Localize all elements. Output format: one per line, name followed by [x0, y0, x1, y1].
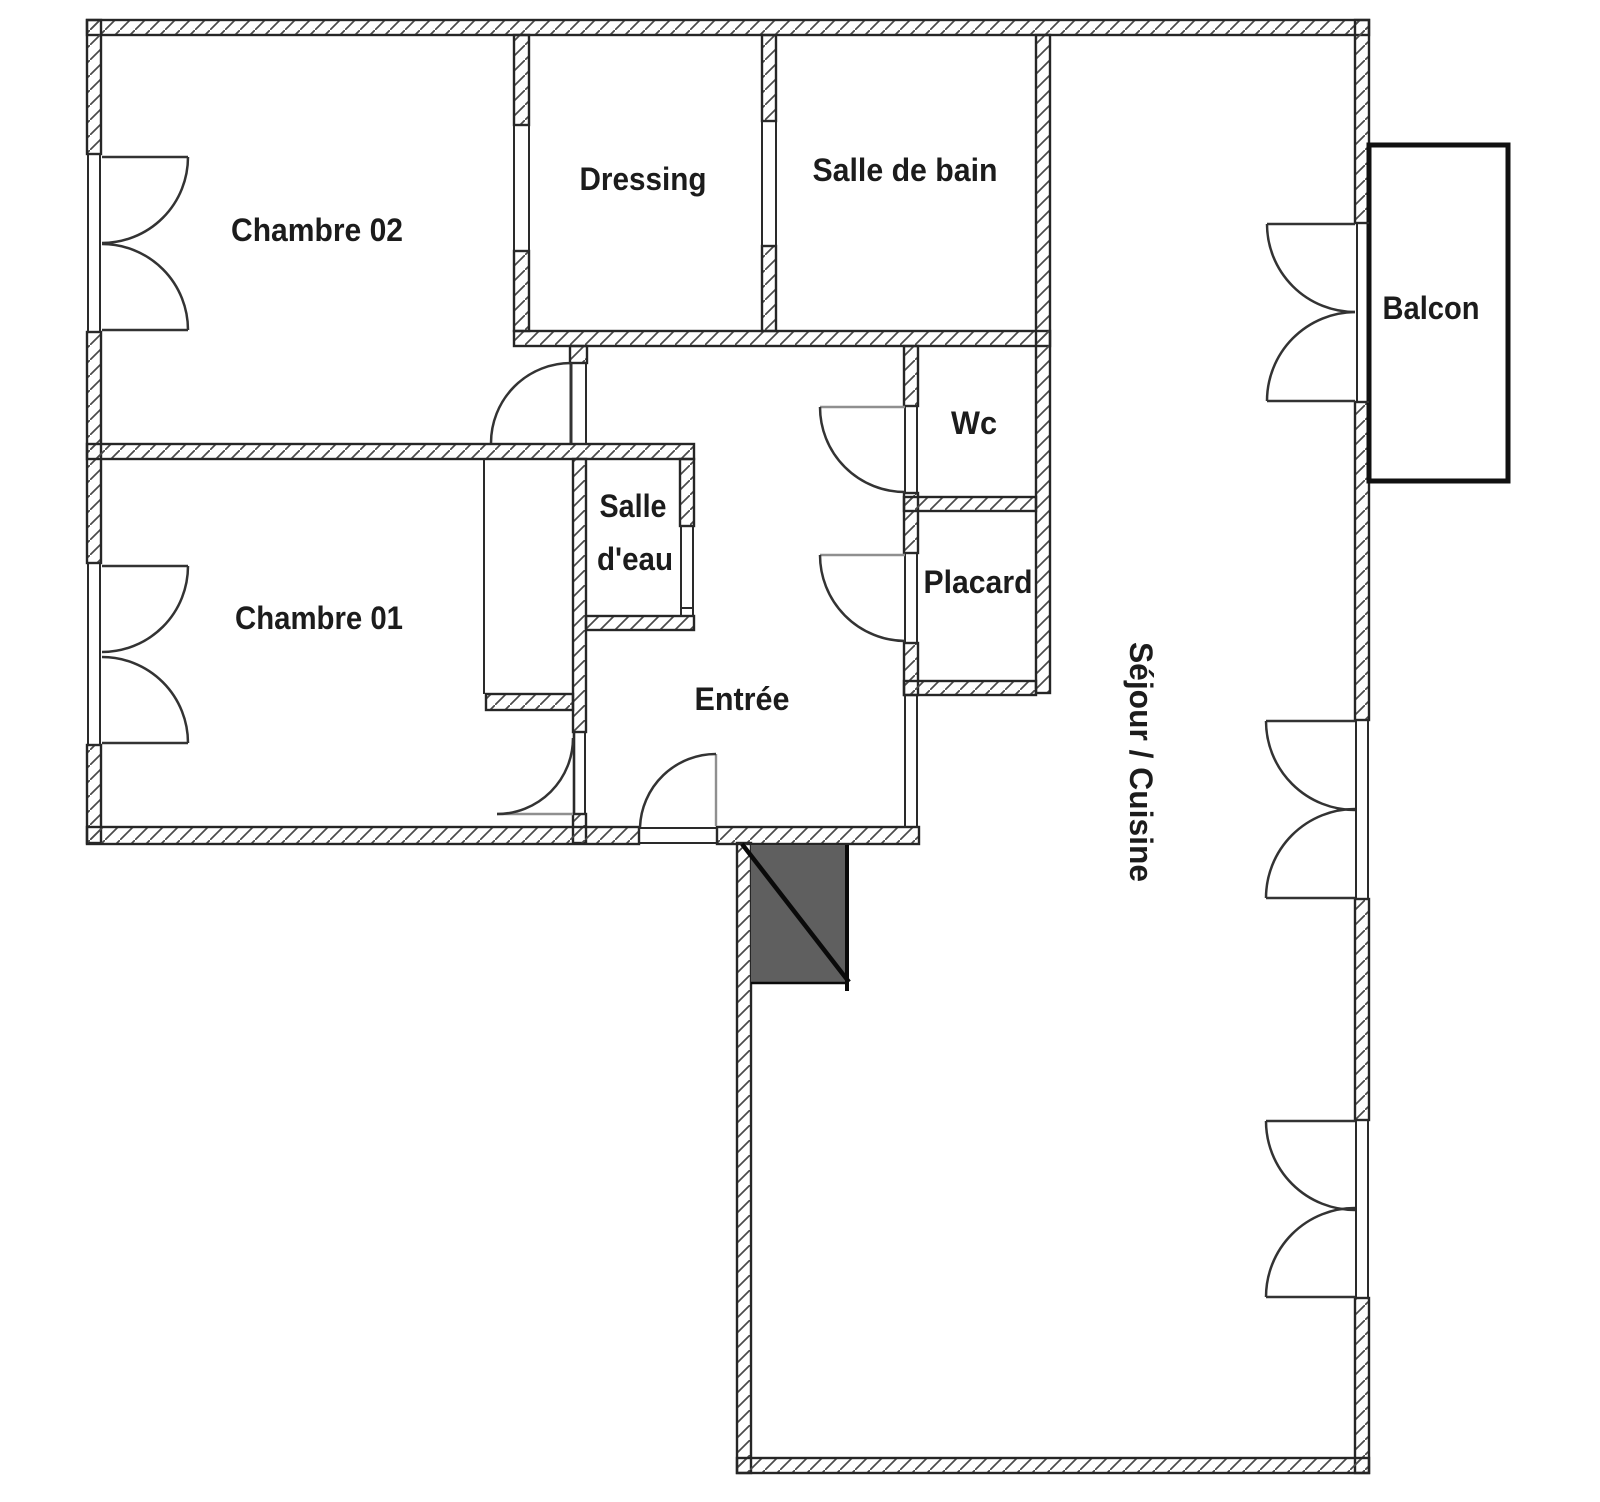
svg-text:Dressing: Dressing: [580, 161, 707, 197]
svg-text:Entrée: Entrée: [695, 681, 790, 717]
svg-text:d'eau: d'eau: [597, 541, 673, 577]
svg-text:Wc: Wc: [951, 405, 997, 441]
svg-text:Salle: Salle: [600, 488, 667, 524]
svg-text:Chambre 02: Chambre 02: [231, 212, 403, 248]
svg-text:Chambre 01: Chambre 01: [235, 600, 403, 636]
svg-text:Placard: Placard: [924, 564, 1033, 600]
svg-text:Séjour / Cuisine: Séjour / Cuisine: [1123, 642, 1159, 882]
svg-text:Salle de bain: Salle de bain: [813, 152, 998, 188]
svg-text:Balcon: Balcon: [1383, 290, 1480, 326]
